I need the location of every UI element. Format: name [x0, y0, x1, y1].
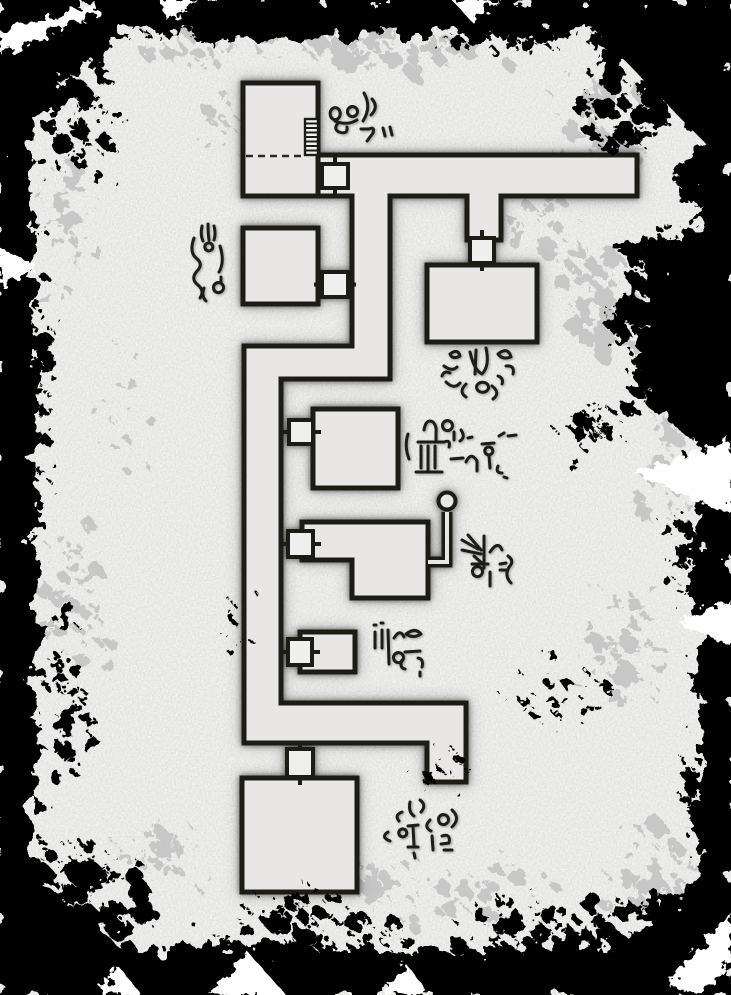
- black-splatter: [243, 906, 247, 910]
- gray-speckle: [413, 879, 415, 881]
- black-splatter: [332, 968, 337, 973]
- black-splatter: [68, 904, 81, 917]
- black-splatter: [708, 150, 713, 155]
- gray-speckle: [665, 517, 668, 520]
- gray-speckle: [179, 39, 184, 44]
- gray-speckle: [123, 466, 129, 472]
- gray-speckle: [409, 922, 420, 933]
- gray-speckle: [383, 49, 401, 67]
- black-splatter: [180, 27, 184, 31]
- black-splatter: [39, 869, 57, 887]
- black-splatter: [580, 680, 582, 682]
- black-splatter: [585, 906, 587, 908]
- black-splatter: [691, 558, 694, 561]
- black-splatter: [24, 68, 30, 74]
- gray-speckle: [224, 125, 227, 128]
- gray-speckle: [146, 416, 155, 425]
- gray-speckle: [615, 277, 617, 279]
- black-splatter: [65, 719, 67, 721]
- black-splatter: [307, 900, 309, 902]
- gray-speckle: [123, 435, 130, 442]
- black-splatter: [32, 48, 38, 54]
- black-splatter: [48, 339, 53, 344]
- black-splatter: [239, 640, 241, 642]
- black-splatter: [216, 934, 219, 937]
- gray-speckle: [605, 603, 610, 608]
- gray-speckle: [650, 856, 653, 859]
- black-splatter: [710, 742, 713, 745]
- gray-speckle: [170, 58, 173, 61]
- black-splatter: [454, 920, 457, 923]
- black-splatter: [681, 794, 692, 805]
- gray-speckle: [229, 107, 231, 109]
- gray-speckle: [605, 634, 609, 638]
- gray-speckle: [640, 611, 647, 618]
- black-splatter: [205, 25, 209, 29]
- black-splatter: [514, 945, 516, 947]
- black-splatter: [626, 251, 643, 268]
- gray-speckle: [237, 124, 239, 126]
- gray-speckle: [109, 420, 112, 423]
- black-splatter: [67, 857, 80, 870]
- black-splatter: [486, 926, 488, 928]
- black-splatter: [676, 354, 679, 357]
- black-splatter: [122, 878, 125, 881]
- gray-speckle: [654, 699, 657, 702]
- gray-speckle: [75, 252, 83, 260]
- black-splatter: [400, 937, 402, 939]
- gray-speckle: [144, 830, 152, 838]
- gray-speckle: [214, 61, 221, 68]
- black-splatter: [488, 36, 492, 40]
- black-splatter: [391, 950, 393, 952]
- gray-speckle: [613, 884, 615, 886]
- black-splatter: [90, 895, 92, 897]
- black-splatter: [571, 458, 578, 465]
- black-splatter: [291, 903, 298, 910]
- black-splatter: [174, 33, 176, 35]
- black-splatter: [287, 963, 293, 969]
- gray-speckle: [355, 49, 373, 67]
- black-splatter: [317, 10, 319, 12]
- black-splatter: [615, 243, 626, 254]
- gray-speckle: [471, 876, 473, 878]
- gray-speckle: [593, 330, 608, 345]
- black-splatter: [473, 908, 486, 921]
- black-splatter: [655, 288, 671, 304]
- black-splatter: [77, 105, 80, 108]
- gray-speckle: [226, 46, 234, 54]
- black-splatter: [710, 833, 717, 840]
- black-splatter: [326, 14, 332, 20]
- black-splatter: [60, 706, 66, 712]
- gray-speckle: [62, 188, 64, 190]
- black-splatter: [439, 14, 445, 20]
- black-splatter: [630, 105, 650, 125]
- black-splatter: [554, 429, 557, 432]
- black-splatter: [294, 946, 296, 948]
- black-splatter: [611, 140, 614, 143]
- black-splatter: [54, 98, 57, 101]
- black-splatter: [565, 929, 567, 931]
- black-splatter: [611, 941, 625, 955]
- black-splatter: [310, 5, 312, 7]
- black-splatter: [272, 20, 274, 22]
- black-splatter: [248, 910, 251, 913]
- black-splatter: [691, 220, 694, 223]
- black-splatter: [198, 15, 206, 23]
- black-splatter: [633, 100, 640, 107]
- gray-speckle: [516, 852, 518, 854]
- gray-speckle: [83, 234, 85, 236]
- gray-speckle: [418, 55, 420, 57]
- black-splatter: [42, 859, 44, 861]
- black-splatter: [589, 102, 592, 105]
- black-splatter: [699, 760, 705, 766]
- black-splatter: [40, 351, 53, 364]
- black-splatter: [28, 74, 32, 78]
- black-splatter: [388, 934, 390, 936]
- black-splatter: [669, 97, 672, 100]
- black-splatter: [545, 679, 554, 688]
- black-splatter: [23, 307, 33, 317]
- gray-speckle: [300, 45, 305, 50]
- black-splatter: [114, 875, 119, 880]
- black-splatter: [580, 707, 588, 715]
- black-splatter: [676, 581, 678, 583]
- gray-speckle: [628, 592, 632, 596]
- gray-speckle: [134, 354, 141, 361]
- black-splatter: [95, 884, 102, 891]
- black-splatter: [53, 331, 56, 334]
- gray-speckle: [542, 874, 548, 880]
- black-splatter: [710, 788, 713, 791]
- gray-speckle: [671, 855, 675, 859]
- black-splatter: [639, 351, 650, 362]
- gray-speckle: [569, 304, 572, 307]
- gray-speckle: [659, 887, 662, 890]
- black-splatter: [717, 761, 719, 763]
- black-splatter: [37, 722, 40, 725]
- gray-speckle: [687, 826, 690, 829]
- gray-speckle: [85, 589, 87, 591]
- gray-speckle: [604, 285, 609, 290]
- gray-speckle: [536, 211, 538, 213]
- black-splatter: [39, 272, 47, 280]
- black-splatter: [27, 934, 44, 951]
- black-splatter: [75, 114, 77, 116]
- black-splatter: [17, 45, 31, 59]
- black-splatter: [572, 466, 579, 473]
- black-splatter: [285, 969, 287, 971]
- gray-speckle: [71, 177, 84, 190]
- gray-speckle: [670, 871, 676, 877]
- gray-speckle: [594, 298, 596, 300]
- gray-speckle: [407, 896, 412, 901]
- black-splatter: [157, 35, 161, 39]
- black-splatter: [644, 401, 647, 404]
- black-splatter: [55, 317, 58, 320]
- black-splatter: [303, 882, 305, 884]
- black-splatter: [314, 916, 316, 918]
- black-splatter: [53, 653, 61, 661]
- gray-speckle: [46, 559, 48, 561]
- black-splatter: [544, 669, 546, 671]
- gray-speckle: [456, 888, 458, 890]
- black-splatter: [548, 22, 550, 24]
- gray-speckle: [639, 148, 645, 154]
- gray-speckle: [589, 84, 595, 90]
- gray-speckle: [57, 291, 63, 297]
- black-splatter: [467, 28, 469, 30]
- black-splatter: [278, 907, 286, 915]
- black-splatter: [240, 924, 252, 936]
- black-splatter: [47, 393, 52, 398]
- black-splatter: [617, 97, 629, 109]
- black-splatter: [388, 972, 390, 974]
- room-3: [427, 265, 537, 342]
- gray-speckle: [92, 613, 99, 620]
- black-splatter: [108, 854, 110, 856]
- black-splatter: [673, 162, 685, 174]
- gray-speckle: [331, 50, 350, 69]
- black-splatter: [440, 961, 454, 975]
- black-splatter: [237, 917, 239, 919]
- gray-speckle: [58, 536, 66, 544]
- black-splatter: [558, 924, 564, 930]
- black-splatter: [722, 203, 724, 205]
- black-splatter: [397, 8, 409, 20]
- black-splatter: [659, 524, 670, 535]
- black-splatter: [52, 377, 58, 383]
- gray-speckle: [638, 654, 640, 656]
- black-splatter: [582, 31, 584, 33]
- gray-speckle: [40, 226, 43, 229]
- black-splatter: [43, 748, 48, 753]
- black-splatter: [78, 627, 80, 629]
- black-splatter: [550, 35, 558, 43]
- black-splatter: [695, 778, 698, 781]
- black-splatter: [640, 901, 644, 905]
- black-splatter: [312, 921, 318, 927]
- gray-speckle: [540, 209, 545, 214]
- black-splatter: [75, 704, 83, 712]
- black-splatter: [695, 588, 697, 590]
- gray-speckle: [594, 283, 602, 291]
- black-splatter: [438, 757, 441, 760]
- black-splatter: [179, 17, 183, 21]
- black-splatter: [51, 747, 54, 750]
- gray-speckle: [144, 850, 146, 852]
- black-splatter: [53, 672, 66, 685]
- gray-speckle: [220, 129, 224, 133]
- black-splatter: [572, 97, 589, 114]
- gray-speckle: [607, 876, 612, 881]
- black-splatter: [595, 432, 597, 434]
- black-splatter: [629, 378, 650, 399]
- black-splatter: [287, 972, 293, 978]
- black-splatter: [288, 940, 291, 943]
- black-splatter: [341, 6, 344, 9]
- gray-speckle: [73, 254, 76, 257]
- black-splatter: [9, 540, 18, 549]
- gray-speckle: [140, 849, 142, 851]
- black-splatter: [624, 439, 626, 441]
- black-splatter: [294, 13, 298, 17]
- gray-speckle: [670, 512, 674, 516]
- black-splatter: [145, 919, 153, 927]
- black-splatter: [505, 898, 514, 907]
- black-splatter: [536, 44, 538, 46]
- black-splatter: [14, 353, 16, 355]
- gray-speckle: [418, 895, 420, 897]
- black-splatter: [317, 925, 320, 928]
- black-splatter: [696, 341, 723, 368]
- black-splatter: [225, 941, 228, 944]
- black-splatter: [664, 55, 675, 66]
- black-splatter: [77, 688, 80, 691]
- black-splatter: [85, 940, 95, 950]
- gray-speckle: [192, 825, 194, 827]
- door-6: [288, 639, 312, 665]
- black-splatter: [627, 249, 629, 251]
- gray-speckle: [194, 843, 199, 848]
- black-splatter: [434, 958, 439, 963]
- gray-speckle: [623, 638, 637, 652]
- black-splatter: [127, 36, 129, 38]
- gray-speckle: [380, 874, 397, 891]
- gray-speckle: [115, 342, 118, 345]
- black-splatter: [213, 933, 215, 935]
- black-splatter: [456, 15, 463, 22]
- black-splatter: [53, 739, 60, 746]
- black-splatter: [160, 23, 162, 25]
- gray-speckle: [503, 853, 507, 857]
- black-splatter: [67, 686, 77, 696]
- black-splatter: [692, 341, 697, 346]
- gray-speckle: [103, 660, 116, 673]
- gray-speckle: [384, 60, 387, 63]
- gray-speckle: [649, 862, 661, 874]
- black-splatter: [33, 423, 35, 425]
- black-splatter: [66, 925, 68, 927]
- room-7: [242, 778, 357, 892]
- black-splatter: [692, 299, 694, 301]
- black-splatter: [632, 930, 653, 951]
- gray-speckle: [564, 259, 574, 269]
- black-splatter: [585, 701, 592, 708]
- black-splatter: [38, 711, 40, 713]
- black-splatter: [362, 935, 371, 944]
- gray-speckle: [100, 621, 105, 626]
- black-splatter: [502, 696, 504, 698]
- black-splatter: [702, 594, 716, 608]
- door-2: [322, 272, 348, 297]
- black-splatter: [164, 18, 167, 21]
- gray-speckle: [206, 875, 211, 880]
- gray-speckle: [62, 550, 65, 553]
- black-splatter: [538, 27, 552, 41]
- black-splatter: [35, 470, 37, 472]
- room-2: [243, 228, 318, 304]
- gray-speckle: [611, 651, 613, 653]
- black-splatter: [240, 636, 242, 638]
- gray-speckle: [47, 544, 50, 547]
- gray-speckle: [184, 49, 189, 54]
- black-splatter: [643, 266, 645, 268]
- black-splatter: [672, 310, 679, 317]
- gray-speckle: [651, 683, 655, 687]
- black-splatter: [48, 770, 60, 782]
- gray-speckle: [602, 351, 608, 357]
- black-splatter: [476, 19, 478, 21]
- black-splatter: [615, 295, 643, 323]
- black-splatter: [686, 594, 689, 597]
- black-splatter: [304, 968, 311, 975]
- gray-speckle: [490, 927, 493, 930]
- gray-speckle: [629, 698, 631, 700]
- gray-speckle: [687, 504, 695, 512]
- black-splatter: [31, 481, 33, 483]
- black-splatter: [37, 406, 46, 415]
- gray-speckle: [77, 267, 79, 269]
- black-splatter: [554, 713, 558, 717]
- black-splatter: [377, 8, 386, 17]
- black-splatter: [306, 13, 311, 18]
- gray-speckle: [51, 168, 53, 170]
- black-splatter: [29, 697, 39, 707]
- black-splatter: [667, 238, 689, 260]
- black-splatter: [653, 73, 660, 80]
- black-splatter: [383, 942, 388, 947]
- gray-speckle: [89, 627, 94, 632]
- black-splatter: [328, 940, 333, 945]
- black-splatter: [280, 965, 283, 968]
- black-splatter: [591, 915, 601, 925]
- door-4: [289, 420, 313, 444]
- black-splatter: [347, 908, 349, 910]
- black-splatter: [595, 964, 603, 972]
- black-splatter: [30, 494, 39, 503]
- gray-speckle: [477, 885, 495, 903]
- gray-speckle: [592, 265, 604, 277]
- gray-speckle: [494, 914, 496, 916]
- gray-speckle: [436, 881, 451, 896]
- black-splatter: [52, 464, 56, 468]
- black-splatter: [571, 426, 585, 440]
- black-splatter: [236, 927, 242, 933]
- black-splatter: [253, 891, 255, 893]
- black-splatter: [71, 888, 74, 891]
- black-splatter: [641, 907, 644, 910]
- gray-speckle: [90, 246, 102, 258]
- black-splatter: [191, 25, 199, 33]
- gray-speckle: [150, 878, 152, 880]
- gray-speckle: [220, 116, 228, 124]
- black-splatter: [174, 967, 182, 975]
- black-splatter: [628, 135, 640, 147]
- gray-speckle: [66, 160, 71, 165]
- black-splatter: [42, 681, 49, 688]
- black-splatter: [579, 9, 584, 14]
- black-splatter: [534, 911, 541, 918]
- gray-speckle: [169, 842, 182, 855]
- black-splatter: [500, 944, 514, 958]
- black-splatter: [594, 97, 616, 119]
- black-splatter: [582, 444, 584, 446]
- black-splatter: [645, 900, 661, 916]
- black-splatter: [625, 93, 628, 96]
